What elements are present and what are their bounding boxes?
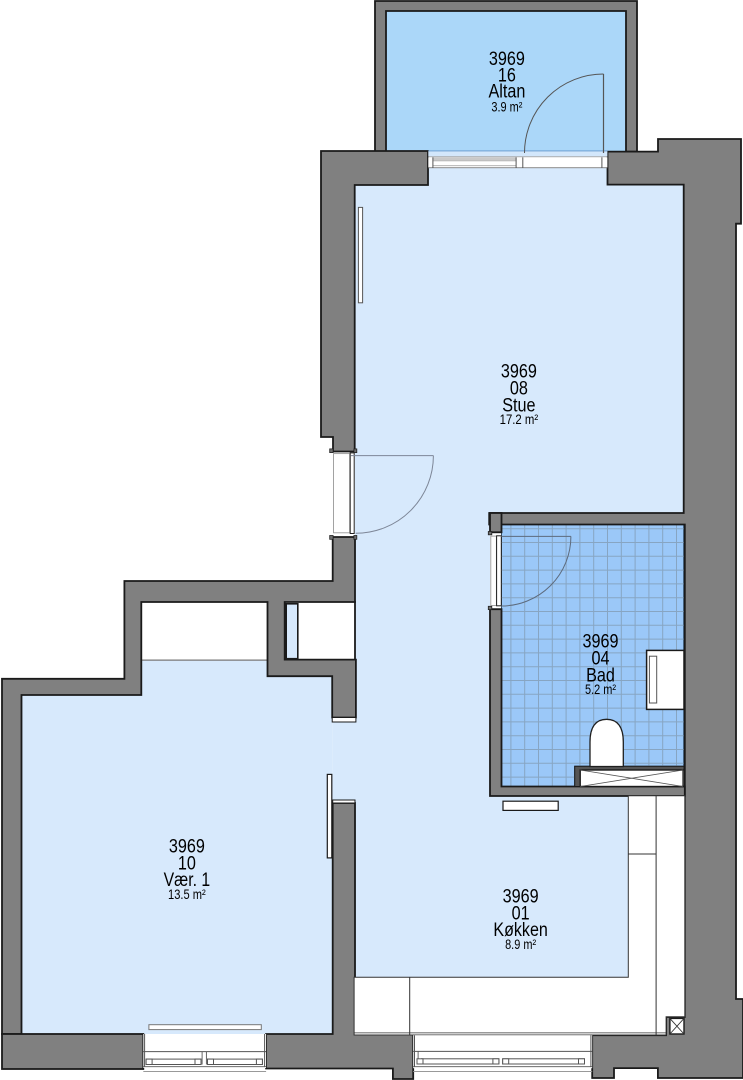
svg-text:5.2 m²: 5.2 m²	[585, 682, 616, 697]
svg-text:13.5 m²: 13.5 m²	[168, 887, 206, 902]
svg-text:8.9 m²: 8.9 m²	[505, 937, 536, 952]
svg-text:3.9 m²: 3.9 m²	[491, 99, 522, 114]
svg-text:17.2 m²: 17.2 m²	[500, 412, 539, 427]
